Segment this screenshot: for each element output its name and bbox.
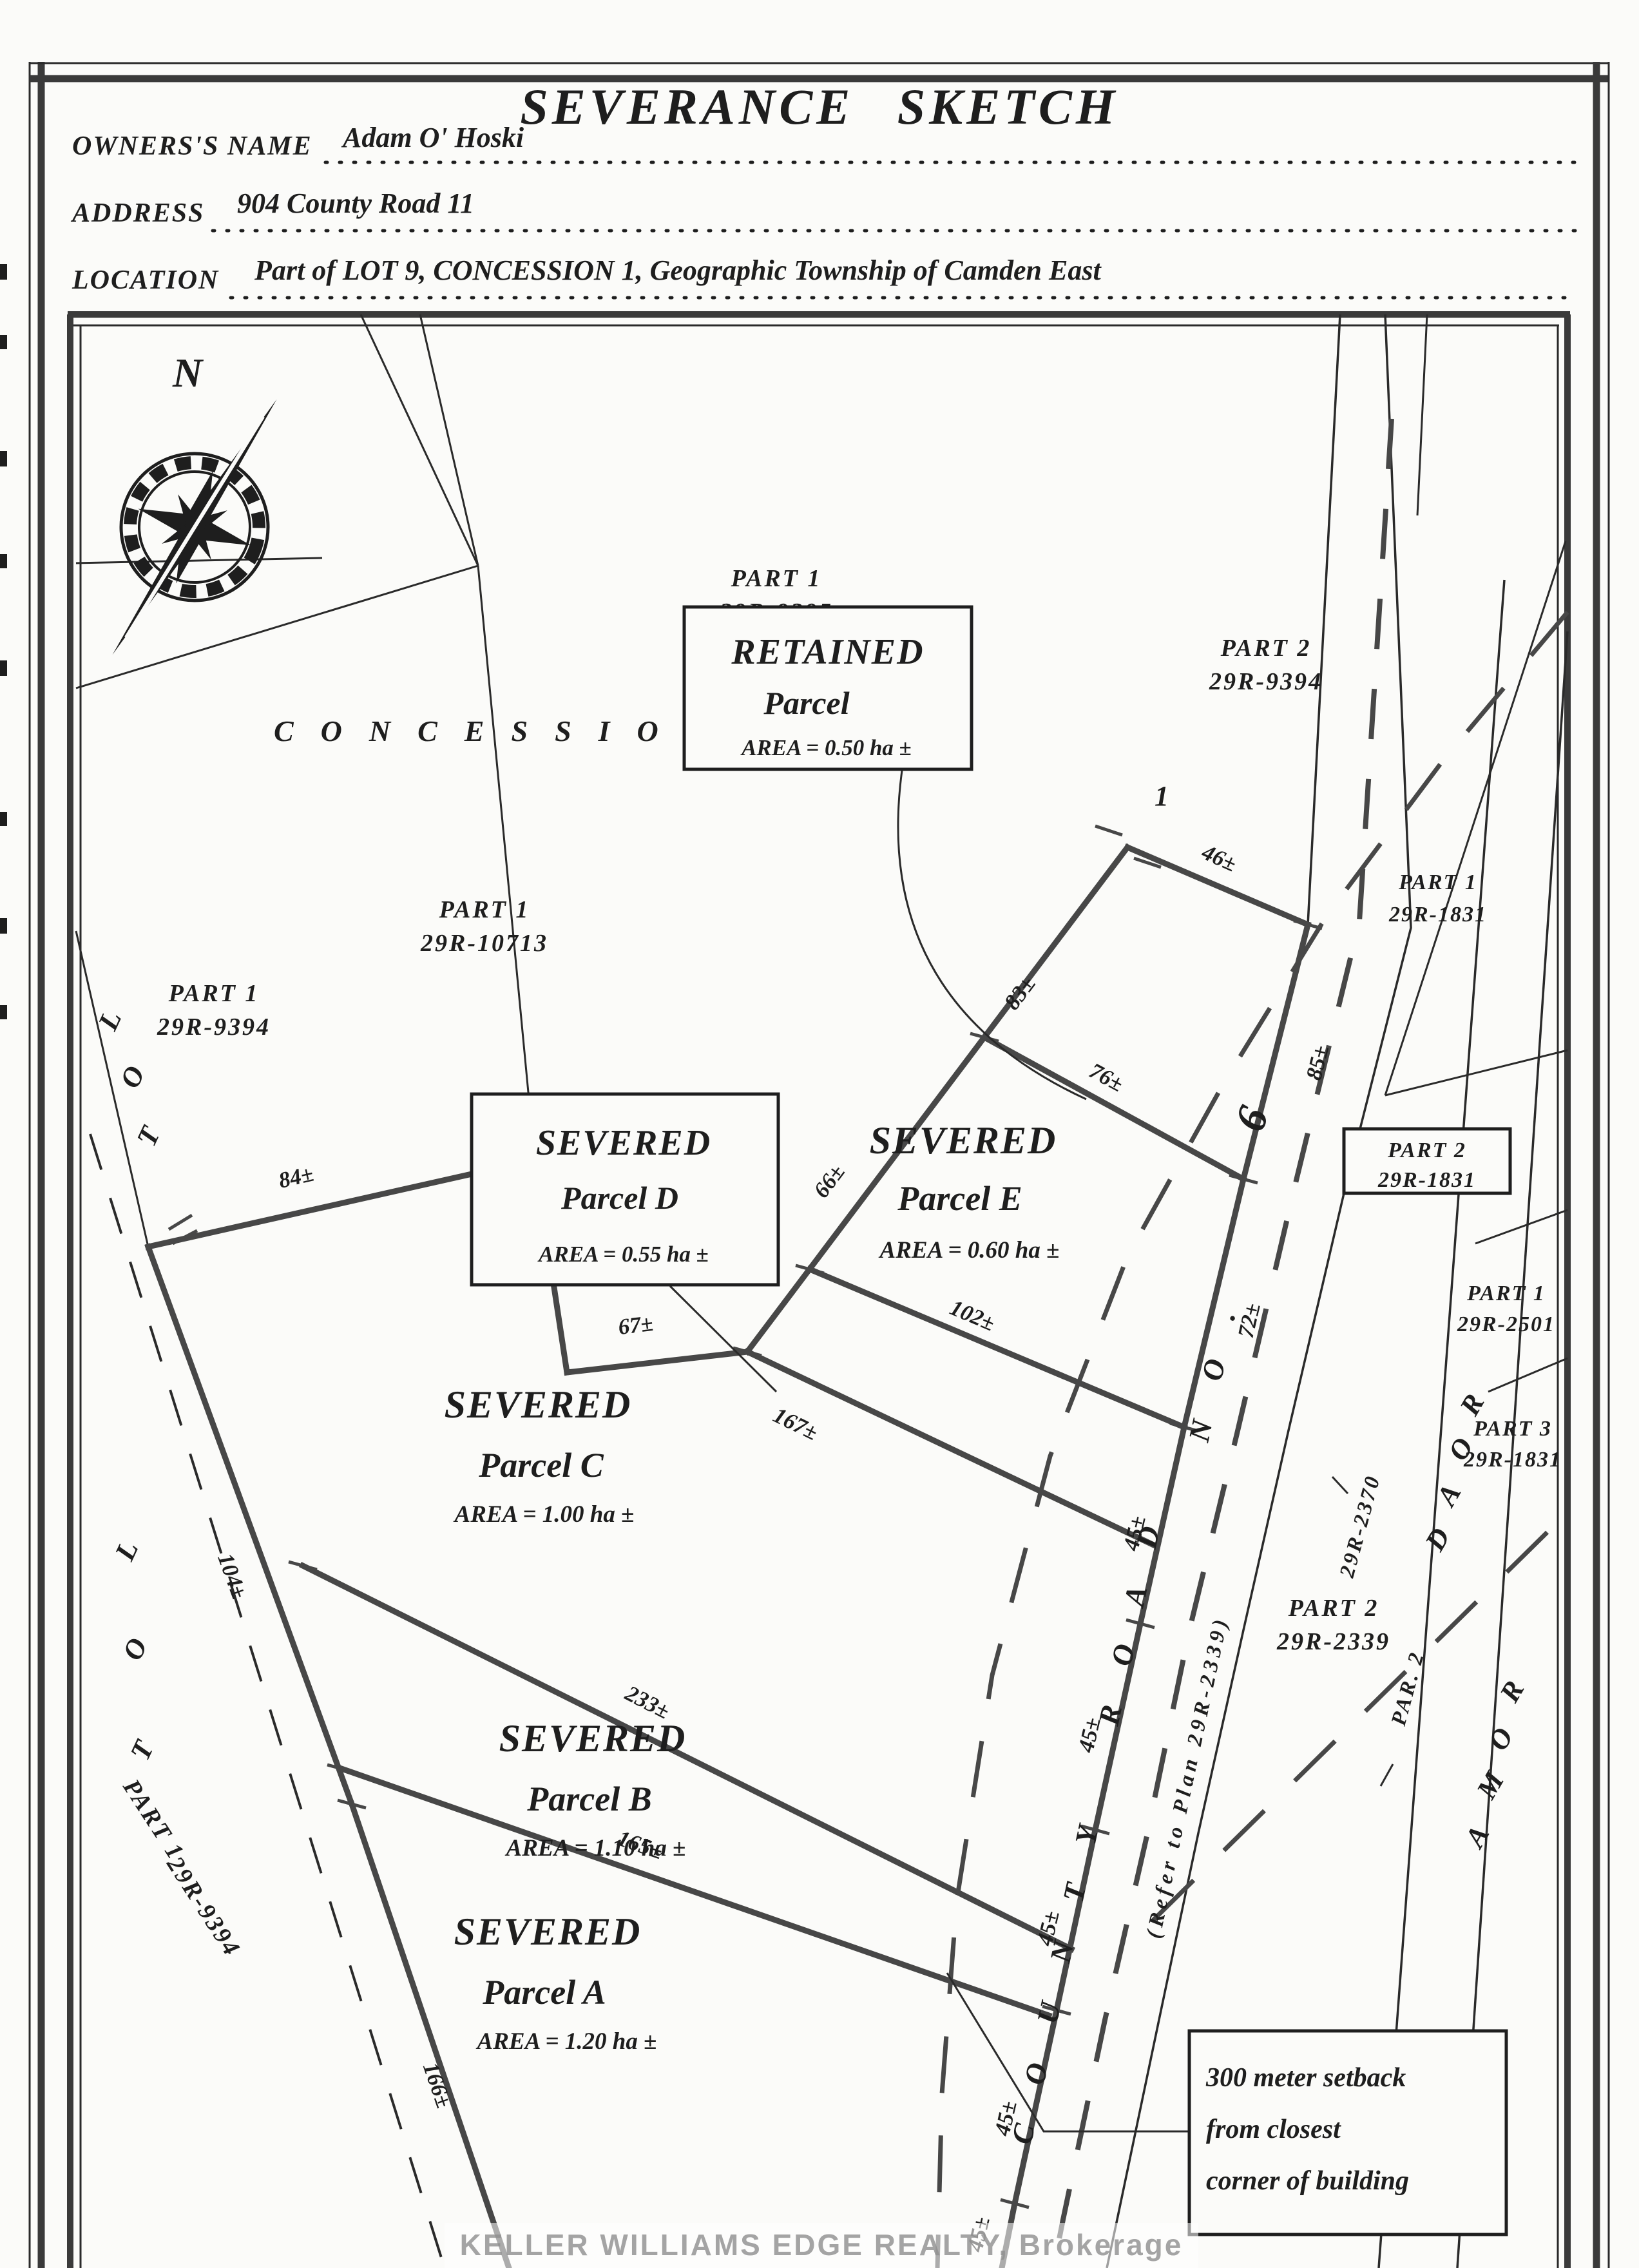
location-value: Part of LOT 9, CONCESSION 1, Geographic … [254, 255, 1102, 286]
parcel-c-line2: Parcel C [478, 1446, 604, 1485]
dim-167: 167± [769, 1402, 822, 1445]
roma-road-letter: M [1470, 1765, 1511, 1805]
compass-north-label: N [172, 350, 204, 396]
parcel-c-line3: AREA = 1.00 ha ± [454, 1501, 635, 1528]
plan-label-10713-l1: PART 1 [439, 896, 530, 923]
compass-needle-slit [126, 398, 263, 657]
lot-labels: L O T L O T [91, 1006, 167, 1765]
parcel-a-line2: Parcel A [482, 1973, 606, 2012]
header: SEVERANCE SKETCH OWNERS'S NAME Adam O' H… [70, 79, 1577, 298]
lot-letter: O [114, 1061, 151, 1093]
leader-lines [670, 771, 1191, 2131]
lot-letter: L [108, 1536, 144, 1566]
boxed-plan-label-l2: 29R-1831 [1377, 1168, 1476, 1192]
parcel-a-label: SEVERED Parcel A AREA = 1.20 ha ± [454, 1910, 657, 2055]
setback-line3: corner of building [1206, 2166, 1409, 2196]
scanned-severance-sketch: SEVERANCE SKETCH OWNERS'S NAME Adam O' H… [0, 0, 1639, 2268]
plan-label-9395-l1: PART 1 [731, 565, 822, 592]
brokerage-watermark: KELLER WILLIAMS EDGE REALTY, Brokerage [445, 2223, 1198, 2268]
sightline-dashed [1153, 1521, 1559, 1920]
roma-road-letter: R [1493, 1675, 1531, 1708]
parcel-e-line3: AREA = 0.60 ha ± [879, 1237, 1060, 1264]
plan-label-1831-p1-l2: 29R-1831 [1388, 903, 1487, 927]
vertex-number: 1 [1155, 780, 1169, 812]
page-title: SEVERANCE SKETCH [520, 79, 1118, 135]
lot-letter: T [124, 1735, 161, 1765]
dim-104: 104± [213, 1550, 252, 1602]
dim-46: 46± [1198, 839, 1240, 876]
plan-label-1831-p3-l1: PART 3 [1473, 1417, 1552, 1441]
plan-label-2339-l1: PART 2 [1288, 1595, 1379, 1622]
parcel-e-label: SEVERED Parcel E AREA = 0.60 ha ± [870, 1119, 1060, 1264]
parcel-d-line2: Parcel D [561, 1180, 678, 1216]
owner-label: OWNERS'S NAME [72, 131, 312, 161]
parcel-c-line1: SEVERED [445, 1383, 632, 1426]
plan-label-2501-l2: 29R-2501 [1457, 1312, 1555, 1336]
county-road-name-county: C O U N T Y [1005, 1807, 1108, 2147]
county-road-refer-note: (Refer to Plan 29R-2339) [1142, 1613, 1234, 1941]
compass-rose: N [76, 350, 322, 689]
parcel-d-line3: AREA = 0.55 ha ± [537, 1242, 709, 1267]
plan-label-1831-p1-l1: PART 1 [1398, 870, 1477, 894]
boxed-plan-label-l1: PART 2 [1387, 1139, 1466, 1162]
county-road-name-no: N O . [1182, 1293, 1245, 1445]
watermark-text: KELLER WILLIAMS EDGE REALTY, Brokerage [460, 2228, 1184, 2262]
plan-label-10713-l2: 29R-10713 [420, 930, 548, 957]
setback-note: 300 meter setback from closest corner of… [1189, 2031, 1506, 2234]
retained-line3: AREA = 0.50 ha ± [740, 735, 912, 760]
severance-sketch-canvas: SEVERANCE SKETCH OWNERS'S NAME Adam O' H… [0, 0, 1639, 2268]
retained-parcel-label: RETAINED Parcel AREA = 0.50 ha ± [684, 607, 972, 769]
rotated-plan-label-l2: 29R-9394 [161, 1851, 246, 1961]
address-value: 904 County Road 11 [237, 187, 474, 219]
dim-67: 67± [617, 1311, 655, 1340]
plan-label-9394-left-l2: 29R-9394 [157, 1014, 271, 1041]
roma-road-letter: A [1458, 1820, 1496, 1854]
retained-line2: Parcel [763, 685, 849, 721]
plan-label-1831-p3-l2: 29R-1831 [1463, 1448, 1562, 1472]
page-edge-scan-marks [0, 264, 7, 1019]
owner-value: Adam O' Hoski [341, 122, 524, 153]
parcel-a-line1: SEVERED [454, 1910, 642, 1953]
lot-letter: L [91, 1006, 128, 1035]
compass-east-west-line [76, 558, 322, 563]
dim-85: 85± [1301, 1043, 1334, 1082]
plan-label-9394-top-l1: PART 2 [1220, 635, 1312, 662]
setback-line2: from closest [1206, 2115, 1341, 2144]
dimension-labels: 46± 83± 66± 76± 85± 72± 45± 45± 45± 45± … [213, 839, 1334, 2254]
plan-label-9394-top-l2: 29R-9394 [1209, 668, 1323, 695]
parcel-b-line1: SEVERED [499, 1717, 687, 1760]
dim-76: 76± [1085, 1058, 1127, 1097]
rotated-plan-label-l1: PART 1 [117, 1774, 189, 1865]
parcel-e-line1: SEVERED [870, 1119, 1057, 1162]
roma-road-letter: D [1419, 1523, 1457, 1557]
parcel-d-label: SEVERED Parcel D AREA = 0.55 ha ± [472, 1094, 778, 1285]
parcel-a-line3: AREA = 1.20 ha ± [476, 2028, 657, 2055]
lot-letter: T [131, 1120, 168, 1151]
dim-66: 66± [809, 1160, 850, 1203]
address-label: ADDRESS [70, 198, 204, 228]
plan-label-2339-l2: 29R-2339 [1276, 1628, 1390, 1655]
plan-label-9394-left-l1: PART 1 [168, 980, 260, 1007]
dashed-lines [937, 419, 1567, 2268]
county-road-number: 6 [1225, 1100, 1278, 1137]
lot-letter: O [117, 1633, 154, 1666]
retained-line1: RETAINED [731, 632, 924, 672]
setback-line1: 300 meter setback [1205, 2063, 1406, 2093]
parcel-d-line1: SEVERED [536, 1123, 711, 1163]
location-label: LOCATION [72, 265, 219, 295]
parcel-b-line2: Parcel B [526, 1780, 651, 1818]
roma-road-letter: O [1482, 1722, 1519, 1756]
parcel-c-label: SEVERED Parcel C AREA = 1.00 ha ± [445, 1383, 635, 1528]
dim-84: 84± [276, 1161, 316, 1193]
county-road-name-road: R O A D [1092, 1507, 1170, 1729]
dim-166: 166± [418, 2059, 457, 2111]
concession-label: CONCESSION [274, 715, 734, 747]
plan-label-2501-l1: PART 1 [1466, 1282, 1546, 1305]
parcel-e-line2: Parcel E [897, 1179, 1022, 1218]
lot-allowance-dashed-line [90, 1134, 445, 2268]
